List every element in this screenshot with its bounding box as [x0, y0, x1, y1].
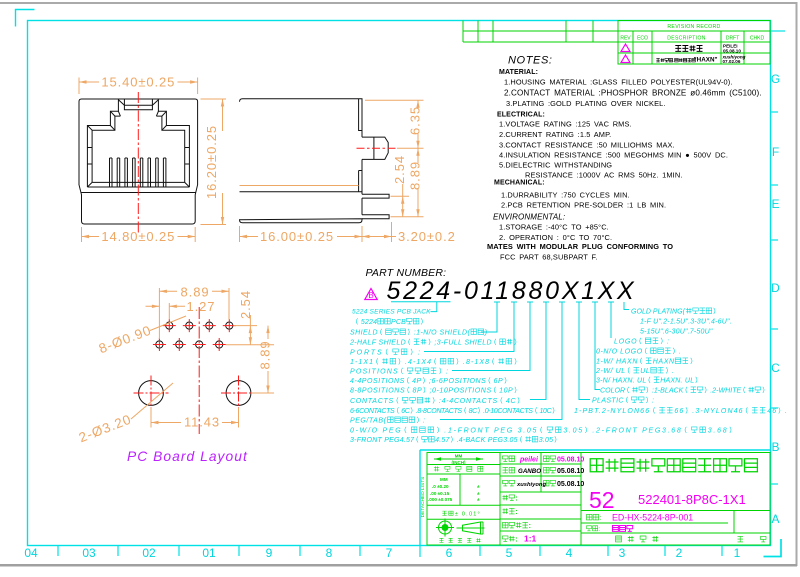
svg-text:52: 52	[589, 487, 615, 513]
svg-text:.0 ±0.20: .0 ±0.20	[432, 484, 449, 489]
svg-text:3: 3	[619, 546, 626, 560]
svg-text:.3-NYLON46: .3-NYLON46	[692, 408, 743, 415]
svg-text::: :	[446, 369, 449, 376]
svg-text:.: .	[785, 408, 788, 415]
svg-text:522401-8P8C-1X1: 522401-8P8C-1X1	[638, 492, 746, 507]
svg-text:HAXN: HAXN	[653, 359, 675, 366]
svg-text:3.05: 3.05	[563, 428, 584, 435]
svg-text:6P: 6P	[494, 378, 504, 385]
svg-text:.4-1X4: .4-1X4	[405, 359, 432, 366]
svg-text:F: F	[772, 145, 779, 159]
svg-text:46: 46	[767, 408, 777, 415]
svg-text:11.43: 11.43	[184, 415, 220, 430]
svg-text:.8-8CONTACTS: .8-8CONTACTS	[416, 408, 463, 415]
svg-text:5.DIELECTRIC WITHSTANDING: 5.DIELECTRIC WITHSTANDING	[499, 161, 612, 170]
svg-text:"HAXN": "HAXN"	[694, 57, 718, 64]
svg-text::: :	[667, 339, 670, 346]
svg-text::: :	[598, 526, 600, 533]
svg-text:.: .	[673, 58, 674, 63]
svg-text:8.89: 8.89	[258, 341, 273, 370]
svg-text:5224: 5224	[361, 319, 377, 326]
svg-text:CONTACTS: CONTACTS	[350, 398, 394, 405]
svg-text:MECHANICAL:: MECHANICAL:	[494, 180, 545, 187]
svg-text:.000 ±0.075: .000 ±0.075	[428, 497, 453, 502]
svg-text:;0-10POSITIONS: ;0-10POSITIONS	[430, 388, 492, 395]
svg-text:1.VOLTAGE RATING :125 VAC RMS.: 1.VOLTAGE RATING :125 VAC RMS.	[499, 120, 632, 129]
svg-text:2.CURRENT RATING :1.5 AMP.: 2.CURRENT RATING :1.5 AMP.	[499, 130, 611, 139]
svg-text:14.80±0.25: 14.80±0.25	[101, 229, 175, 244]
svg-text:PORTS: PORTS	[350, 350, 384, 357]
svg-text:LOGO: LOGO	[614, 339, 637, 346]
svg-text:0-W/O PEG: 0-W/O PEG	[350, 428, 402, 435]
svg-text:CHKD: CHKD	[750, 36, 765, 42]
svg-text:8: 8	[326, 546, 333, 560]
svg-text:NOTES:: NOTES:	[508, 55, 553, 67]
svg-text:8.89: 8.89	[408, 161, 423, 190]
svg-text:ECO: ECO	[637, 36, 648, 42]
svg-text:C: C	[771, 361, 780, 375]
svg-text:01: 01	[202, 546, 216, 560]
svg-text:5-15U".6-30U".7-50U": 5-15U".6-30U".7-50U"	[640, 329, 713, 336]
svg-text::: :	[423, 418, 426, 425]
svg-text:5: 5	[506, 546, 513, 560]
svg-text:2: 2	[676, 546, 683, 560]
svg-text:16.00±0.25: 16.00±0.25	[260, 229, 334, 244]
svg-text:8.89: 8.89	[181, 284, 210, 299]
svg-text:3.20±0.2: 3.20±0.2	[398, 229, 456, 244]
svg-text:.: .	[679, 349, 682, 356]
svg-text:PCB: PCB	[391, 319, 406, 326]
svg-text:7: 7	[386, 546, 393, 560]
svg-text:DETACHED LISTS: DETACHED LISTS	[420, 477, 426, 518]
svg-text:8-8POSITIONS: 8-8POSITIONS	[350, 388, 405, 395]
svg-text:2-HALF SHIELD: 2-HALF SHIELD	[349, 340, 406, 347]
svg-text:3.68: 3.68	[708, 428, 729, 435]
svg-text:66: 66	[674, 408, 684, 415]
svg-text:2.CONTACT MATERIAL :PHOSPHOR B: 2.CONTACT MATERIAL :PHOSPHOR BRONZE ø0.4…	[504, 89, 762, 98]
svg-text:ED-HX-5224-8P-001: ED-HX-5224-8P-001	[612, 513, 693, 523]
svg-text:.0-10CONTACTS: .0-10CONTACTS	[483, 408, 533, 415]
svg-text:.00 ±0.15: .00 ±0.15	[430, 491, 450, 496]
svg-text:1-PBT.2-NYLON66: 1-PBT.2-NYLON66	[574, 408, 650, 415]
svg-text:16.20±0.25: 16.20±0.25	[204, 125, 219, 199]
svg-text:3-N/ HAXN. UL: 3-N/ HAXN. UL	[596, 378, 646, 385]
svg-text:E: E	[771, 197, 779, 211]
svg-text:POSITIONS: POSITIONS	[350, 369, 399, 376]
svg-text:5224-011880X1XX: 5224-011880X1XX	[387, 277, 637, 305]
svg-text:1-W/ HAXN: 1-W/ HAXN	[596, 359, 638, 366]
svg-text:HAXN. UL: HAXN. UL	[660, 378, 694, 385]
svg-text::: :	[418, 350, 422, 357]
svg-text:4.INSULATION RESISTANCE :500 M: 4.INSULATION RESISTANCE :500 MEGOHMS MIN…	[499, 151, 728, 160]
svg-text:.8-1X8: .8-1X8	[463, 359, 490, 366]
svg-text:04: 04	[24, 546, 38, 560]
svg-text:GOLD PLATING(: GOLD PLATING(	[631, 309, 686, 316]
svg-text:4P: 4P	[412, 378, 422, 385]
svg-text:3-FRONT PEG4.57: 3-FRONT PEG4.57	[350, 437, 415, 444]
svg-text:.1-FRONT PEG 3.05: .1-FRONT PEG 3.05	[444, 428, 538, 435]
svg-text:4: 4	[566, 546, 573, 560]
svg-text:10C: 10C	[540, 408, 553, 415]
svg-text:;6-6POSITIONS: ;6-6POSITIONS	[429, 378, 486, 385]
svg-text:PEG/TAB(: PEG/TAB(	[350, 418, 387, 425]
svg-text:GANBO: GANBO	[518, 468, 541, 475]
svg-text:8C: 8C	[469, 408, 479, 415]
svg-text:1.27: 1.27	[187, 299, 216, 314]
svg-text:1-1X1: 1-1X1	[350, 359, 374, 366]
svg-text:UL: UL	[640, 368, 650, 375]
svg-text:ELECTRICAL:: ELECTRICAL:	[497, 112, 545, 119]
svg-text:;3-FULL SHIELD: ;3-FULL SHIELD	[434, 340, 492, 347]
svg-text:.2-WHITE: .2-WHITE	[710, 388, 741, 395]
svg-text:2.54: 2.54	[238, 290, 253, 319]
svg-text:MATES WITH MODULAR PLUG CONFOR: MATES WITH MODULAR PLUG CONFORMING TO	[487, 242, 673, 251]
svg-text::4-4CONTACTS: :4-4CONTACTS	[439, 398, 498, 405]
svg-text:05.08.10: 05.08.10	[557, 481, 584, 488]
svg-text:MM: MM	[455, 454, 463, 459]
svg-text:MM: MM	[440, 477, 448, 482]
svg-text::: :	[652, 398, 654, 405]
svg-text:2.54: 2.54	[392, 155, 407, 184]
svg-text:2. OPERATION : 0°C TO 70°C.: 2. OPERATION : 0°C TO 70°C.	[499, 233, 612, 242]
svg-text:1:1: 1:1	[524, 534, 537, 544]
svg-text:4-4POSITIONS: 4-4POSITIONS	[350, 378, 405, 385]
svg-text:REVISION RECORD: REVISION RECORD	[667, 24, 720, 30]
svg-text:1.STORAGE :-40°C TO +85°C.: 1.STORAGE :-40°C TO +85°C.	[499, 223, 609, 232]
svg-text:9: 9	[266, 546, 273, 560]
svg-text:8P: 8P	[413, 388, 423, 395]
svg-text:COLOR: COLOR	[600, 388, 625, 395]
svg-text:1: 1	[734, 546, 741, 560]
svg-text:.: .	[672, 368, 675, 375]
svg-text::: :	[529, 523, 531, 530]
svg-text:1-F U".2-1.5U".3-3U".4-6U".: 1-F U".2-1.5U".3-3U".4-6U".	[640, 319, 732, 326]
svg-text::: :	[599, 515, 601, 522]
svg-text:SHIELD: SHIELD	[350, 330, 378, 337]
svg-text:(INCH): (INCH)	[452, 460, 466, 465]
svg-text:PLASTIC: PLASTIC	[592, 398, 624, 405]
svg-text:RESISTANCE :1000V AC RMS 50Hz.: RESISTANCE :1000V AC RMS 50Hz. 1MIN.	[525, 171, 683, 180]
svg-text:6.35: 6.35	[408, 106, 423, 135]
svg-text:G: G	[771, 72, 780, 86]
svg-text:B: B	[368, 291, 373, 300]
svg-text:A: A	[771, 512, 779, 526]
svg-text::1-BLACK: :1-BLACK	[652, 388, 684, 395]
svg-text:2.PCB RETENTION PRE-SOLDER :1: 2.PCB RETENTION PRE-SOLDER :1 LB MIN.	[501, 201, 666, 210]
svg-text::1-N/O SHIELD(: :1-N/O SHIELD(	[414, 330, 471, 337]
svg-text:6C: 6C	[401, 408, 411, 415]
svg-text:02: 02	[142, 546, 156, 560]
svg-text:4C: 4C	[506, 398, 517, 405]
svg-text:.2-FRONT PEG3.68: .2-FRONT PEG3.68	[592, 428, 682, 435]
svg-text:05.08.10: 05.08.10	[723, 49, 741, 54]
svg-text:6-6CONTACTS: 6-6CONTACTS	[350, 408, 395, 415]
svg-text::: :	[515, 496, 517, 503]
svg-text:03: 03	[82, 546, 96, 560]
svg-text:10P: 10P	[499, 388, 513, 395]
svg-text:6: 6	[446, 546, 453, 560]
svg-text:0-N/O LOGO: 0-N/O LOGO	[596, 349, 643, 356]
svg-text:5224 SERIES PCB JACK: 5224 SERIES PCB JACK	[352, 309, 431, 316]
svg-text:07.02.06: 07.02.06	[723, 59, 741, 64]
svg-text:1.DURRABILITY :750 CYCLES MIN.: 1.DURRABILITY :750 CYCLES MIN.	[501, 191, 630, 200]
svg-text:): )	[484, 330, 488, 337]
svg-text:xushiyong: xushiyong	[516, 482, 546, 488]
svg-text:3.05: 3.05	[539, 437, 554, 444]
svg-text:peilei: peilei	[519, 457, 539, 464]
svg-text:FCC PART 68,SUBPART F.: FCC PART 68,SUBPART F.	[500, 253, 598, 262]
svg-text:MATERIAL:: MATERIAL:	[499, 69, 538, 76]
svg-text:15.40±0.25: 15.40±0.25	[101, 75, 175, 90]
svg-text:2-W/ UL: 2-W/ UL	[595, 368, 626, 375]
svg-text:05.08.10: 05.08.10	[557, 468, 584, 475]
svg-text:3.CONTACT RESISTANCE :50 MILLI: 3.CONTACT RESISTANCE :50 MILLIOHMS MAX.	[499, 141, 675, 150]
svg-text:DESCRIPTION: DESCRIPTION	[667, 36, 706, 42]
svg-text::: :	[515, 537, 517, 544]
svg-text::: :	[515, 509, 517, 516]
svg-text:DRFT: DRFT	[726, 36, 739, 42]
svg-text:3.PLATING :GOLD PLATING OVER N: 3.PLATING :GOLD PLATING OVER NICKEL.	[506, 99, 666, 108]
svg-text:.4-BACK PEG3.05: .4-BACK PEG3.05	[457, 437, 518, 444]
svg-text:05.08.10: 05.08.10	[557, 457, 584, 464]
svg-text:ENVIRONMENTAL:: ENVIRONMENTAL:	[493, 213, 565, 222]
svg-text:PC Board Layout: PC Board Layout	[127, 449, 248, 464]
svg-text:1.HOUSING MATERIAL :GLASS FILL: 1.HOUSING MATERIAL :GLASS FILLED POLYEST…	[504, 78, 733, 87]
svg-text:4.57: 4.57	[435, 437, 450, 444]
svg-text:B: B	[771, 440, 779, 454]
svg-text:± 0.01°: ± 0.01°	[455, 512, 481, 518]
svg-text:D: D	[771, 281, 780, 295]
svg-text:REV: REV	[620, 36, 631, 42]
